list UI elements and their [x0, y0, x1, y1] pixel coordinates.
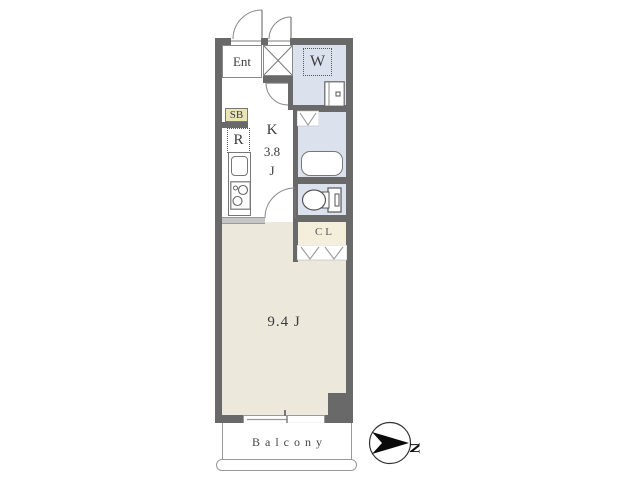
- entrance-hall: Ent: [222, 45, 262, 78]
- balcony: Balcony: [222, 423, 352, 461]
- balcony-label: Balcony: [252, 435, 327, 450]
- main-room-size: 9.4 J: [267, 314, 300, 331]
- shoe-box-label: SB: [230, 109, 243, 121]
- main-room-label: 9.4 J: [224, 310, 344, 334]
- closet: CL: [298, 218, 349, 246]
- washing-machine-label: W: [310, 53, 325, 71]
- kitchen-sink: [231, 156, 248, 176]
- shoe-box: SB: [225, 108, 248, 122]
- wall: [290, 38, 353, 45]
- wall: [215, 38, 222, 423]
- kitchen-door-swing-icon: [262, 185, 298, 221]
- wall: [215, 415, 243, 423]
- wall: [346, 38, 353, 423]
- hall-door-swing-icon: [262, 79, 292, 109]
- closet-folding-doors-icon: [297, 245, 347, 262]
- closet-label: CL: [315, 226, 335, 238]
- washbasin-icon: [324, 81, 345, 107]
- toilet-icon: [300, 186, 344, 214]
- washing-machine-space: W: [303, 48, 332, 76]
- window-center-tick: [284, 410, 286, 416]
- kitchen-letter: K: [267, 119, 278, 142]
- refrigerator-space: R: [227, 128, 250, 153]
- kitchen-label: K 3.8 J: [250, 116, 294, 184]
- kitchen-unit: J: [269, 161, 274, 181]
- pillar: [328, 393, 353, 423]
- meter-box: [263, 45, 293, 76]
- bath-folding-door-icon: [297, 110, 319, 128]
- wall: [298, 177, 346, 184]
- wall: [293, 215, 346, 222]
- entrance-label: Ent: [233, 54, 251, 70]
- stove-icon: [230, 181, 251, 210]
- floor-plan: CL Ent: [0, 0, 640, 480]
- bathtub: [301, 151, 343, 176]
- meter-box-cross-icon: [264, 46, 292, 75]
- north-arrow-icon: [372, 432, 409, 454]
- kitchen-size: 3.8: [264, 142, 280, 162]
- refrigerator-label: R: [233, 132, 243, 149]
- compass-icon: N: [366, 420, 424, 470]
- balcony-railing: [216, 459, 357, 471]
- entrance-door-swing-icon: [222, 6, 294, 42]
- compass-north-label: N: [406, 443, 422, 454]
- kitchen-room-boundary: [222, 217, 265, 224]
